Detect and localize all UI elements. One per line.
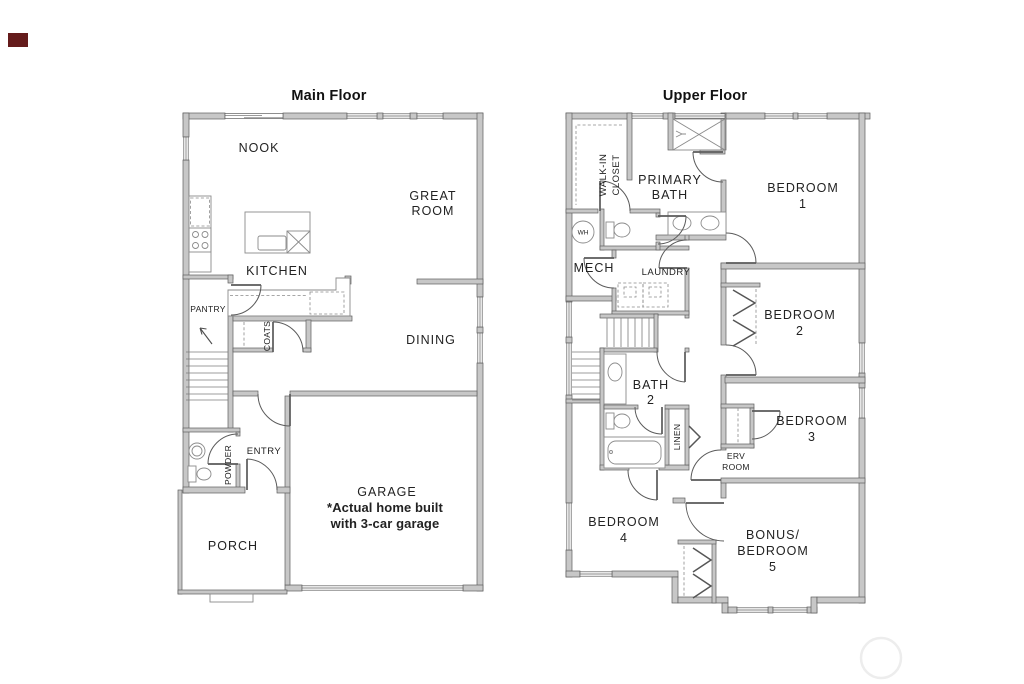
front-door <box>247 459 277 490</box>
label-garage-note-2: with 3-car garage <box>330 516 440 531</box>
powder-toilet-icon <box>188 466 196 482</box>
bedroom3-door <box>691 450 721 480</box>
main-floor-title: Main Floor <box>291 88 366 104</box>
label-erv-2: ROOM <box>722 462 750 472</box>
kitchen-island <box>245 212 310 253</box>
floorplan-page: Main Floor Upper Floor <box>0 0 1024 684</box>
bath2-toilet-icon <box>606 413 614 429</box>
label-great-room-1: GREAT <box>409 189 456 203</box>
label-bedroom3-2: 3 <box>808 430 816 444</box>
laundry-door <box>659 240 687 268</box>
label-walk-in-closet-1: WALK-IN <box>598 154 609 197</box>
label-dining: DINING <box>406 333 456 347</box>
label-pantry: PANTRY <box>190 304 226 314</box>
primary-toilet-icon <box>606 222 614 238</box>
label-laundry: LAUNDRY <box>642 267 691 278</box>
label-erv-1: ERV <box>727 451 745 461</box>
label-bonus-2: BEDROOM <box>737 544 809 558</box>
bonus-room-door <box>686 503 724 541</box>
coats-door <box>273 322 303 352</box>
label-bath2-1: BATH <box>633 378 669 392</box>
bedroom2-closet-bifold <box>733 290 755 316</box>
bonus-closet-bifold <box>693 548 711 572</box>
porch-step <box>210 594 253 602</box>
watermark-circle <box>861 638 901 678</box>
brand-mark <box>8 33 28 47</box>
label-entry: ENTRY <box>247 446 282 457</box>
label-primary-bath-2: BATH <box>652 188 688 202</box>
label-bedroom1-1: BEDROOM <box>767 181 839 195</box>
label-nook: NOOK <box>239 141 280 155</box>
label-primary-bath-1: PRIMARY <box>638 173 702 187</box>
bonus-closet-bifold <box>693 574 711 598</box>
bedroom2-closet-bifold <box>733 320 755 346</box>
label-great-room-2: ROOM <box>412 204 455 218</box>
label-bedroom4-1: BEDROOM <box>588 515 660 529</box>
label-bedroom4-2: 4 <box>620 531 628 545</box>
label-porch: PORCH <box>208 539 258 553</box>
label-bonus-3: 5 <box>769 560 777 574</box>
label-garage-note-1: *Actual home built <box>327 500 443 515</box>
floorplan-drawing: Main Floor Upper Floor <box>0 0 1024 684</box>
label-coats: COATS <box>262 321 272 351</box>
label-water-heater: WH <box>578 230 589 237</box>
label-bedroom2-1: BEDROOM <box>764 308 836 322</box>
label-bedroom3-1: BEDROOM <box>776 414 848 428</box>
shower-head-icon <box>676 131 686 137</box>
label-linen: LINEN <box>672 424 682 451</box>
upper-floor-plan: WALK-IN CLOSET PRIMARY BATH BEDROOM 1 WH… <box>566 113 870 613</box>
main-floor-plan: NOOK GREAT ROOM KITCHEN PANTRY COATS DIN… <box>178 113 483 602</box>
label-bedroom2-2: 2 <box>796 324 804 338</box>
label-bedroom1-2: 1 <box>799 197 807 211</box>
bath2-inner-door <box>635 407 662 434</box>
stair-direction-arrow <box>200 328 212 344</box>
label-walk-in-closet-2: CLOSET <box>611 154 622 195</box>
powder-sink-icon <box>189 443 205 459</box>
label-kitchen: KITCHEN <box>246 264 308 278</box>
main-stairs <box>186 328 228 400</box>
bath2-vanity <box>604 354 626 404</box>
bedroom4-door <box>628 470 657 500</box>
upper-floor-title: Upper Floor <box>663 88 748 104</box>
label-bonus-1: BONUS/ <box>746 528 800 542</box>
label-bath2-2: 2 <box>647 393 655 407</box>
linen-bifold <box>689 426 700 448</box>
bedroom2-door <box>726 345 756 375</box>
label-garage: GARAGE <box>357 485 417 499</box>
label-mech: MECH <box>574 261 615 275</box>
label-powder: POWDER <box>223 445 233 485</box>
bedroom1-door <box>726 233 756 263</box>
